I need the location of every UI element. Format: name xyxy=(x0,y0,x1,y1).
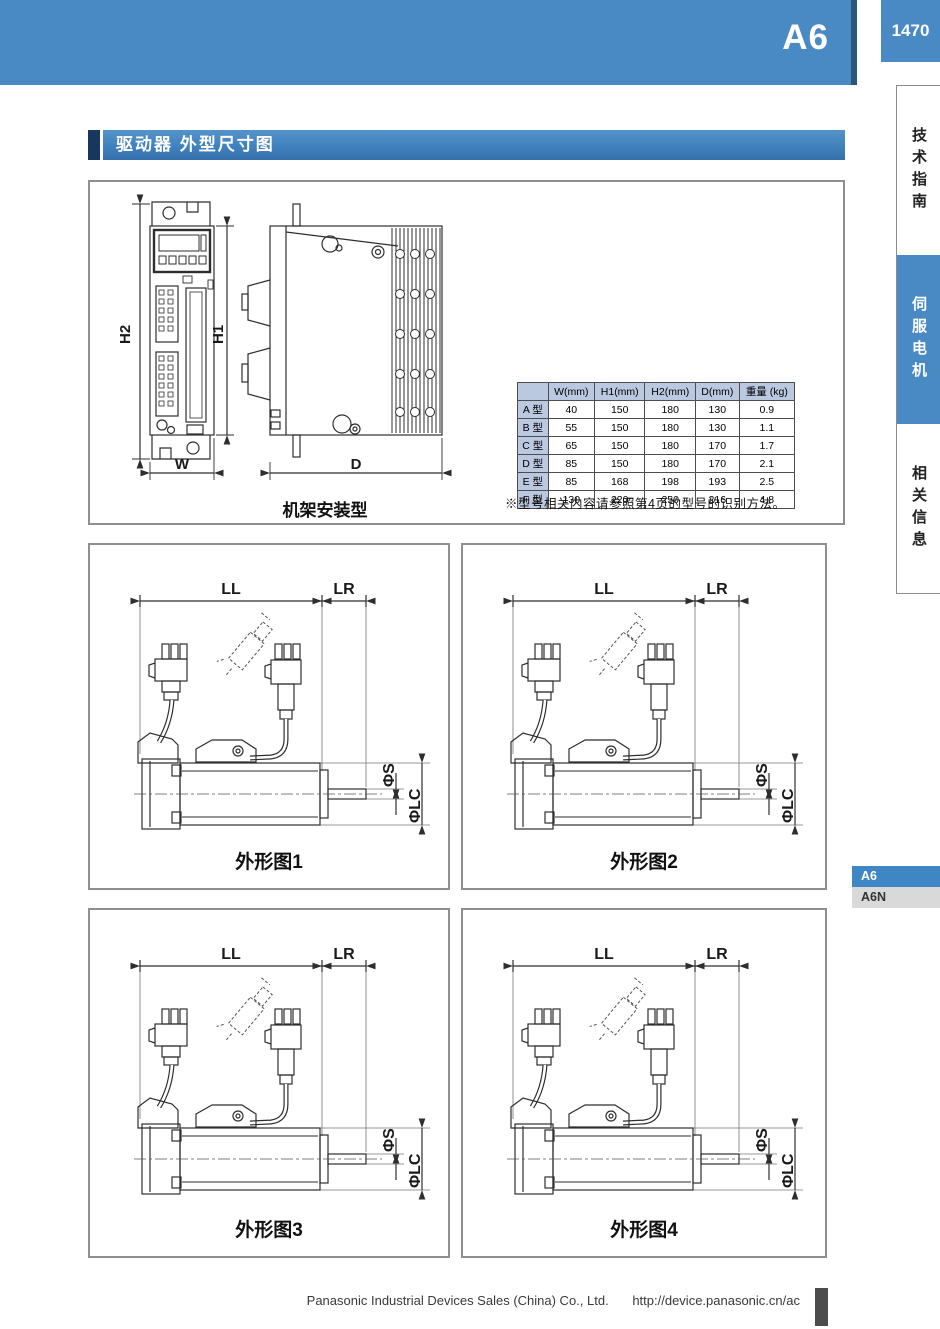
driver-side-view xyxy=(242,204,442,457)
col-header-type xyxy=(518,383,549,401)
col-header-h1: H1(mm) xyxy=(594,383,645,401)
col-header-w: W(mm) xyxy=(548,383,594,401)
cell-weight: 0.9 xyxy=(739,401,794,419)
sidebar-tab-tech-guide[interactable]: 技术指南 xyxy=(897,86,940,255)
cell-h1: 150 xyxy=(594,401,645,419)
top-header-bar: A6 xyxy=(0,0,851,85)
driver-front-view xyxy=(150,202,214,459)
page-number-badge: 1470 xyxy=(881,0,940,62)
cell-w: 40 xyxy=(548,401,594,419)
row-label: C 型 xyxy=(518,437,549,455)
table-header-row: W(mm) H1(mm) H2(mm) D(mm) 重量 (kg) xyxy=(518,383,795,401)
driver-spec-table: W(mm) H1(mm) H2(mm) D(mm) 重量 (kg) A 型 40… xyxy=(517,382,795,509)
table-row: D 型 85 150 180 170 2.1 xyxy=(518,455,795,473)
cell-weight: 1.1 xyxy=(739,419,794,437)
cell-h2: 180 xyxy=(645,437,696,455)
dim-label-d: D xyxy=(351,456,362,473)
col-header-h2: H2(mm) xyxy=(645,383,696,401)
cell-weight: 2.1 xyxy=(739,455,794,473)
series-code: A6 xyxy=(782,18,829,58)
cell-h1: 150 xyxy=(594,437,645,455)
footer: Panasonic Industrial Devices Sales (Chin… xyxy=(0,1293,800,1308)
driver-caption: 机架安装型 xyxy=(210,496,440,521)
table-row: E 型 85 168 198 193 2.5 xyxy=(518,473,795,491)
cell-d: 130 xyxy=(696,401,740,419)
figure-caption: 外形图2 xyxy=(463,847,825,874)
footer-url[interactable]: http://device.panasonic.cn/ac xyxy=(632,1293,800,1308)
figure-caption: 外形图4 xyxy=(463,1215,825,1242)
motor-outline-drawing xyxy=(92,914,446,1214)
outline-figure-panel-2: 外形图2 xyxy=(461,543,827,890)
cell-d: 170 xyxy=(696,455,740,473)
cell-h1: 168 xyxy=(594,473,645,491)
cell-h2: 180 xyxy=(645,401,696,419)
header-edge-strip xyxy=(851,0,857,85)
row-label: E 型 xyxy=(518,473,549,491)
cell-d: 170 xyxy=(696,437,740,455)
col-header-weight: 重量 (kg) xyxy=(739,383,794,401)
outline-figure-panel-1: 外形图1 xyxy=(88,543,450,890)
row-label: A 型 xyxy=(518,401,549,419)
series-tab-a6n[interactable]: A6N xyxy=(852,887,940,908)
cell-d: 130 xyxy=(696,419,740,437)
catalog-page: A6 1470 技术指南 伺服电机 相关信息 A6 A6N 驱动器 外型尺寸图 … xyxy=(0,0,940,1329)
outline-figure-panel-3: 外形图3 xyxy=(88,908,450,1258)
cell-h2: 198 xyxy=(645,473,696,491)
motor-outline-drawing xyxy=(465,549,819,849)
series-tab-group: A6 A6N xyxy=(852,866,940,908)
title-accent-square xyxy=(88,130,100,160)
table-row: C 型 65 150 180 170 1.7 xyxy=(518,437,795,455)
dim-label-w: W xyxy=(175,456,190,473)
cell-h2: 180 xyxy=(645,419,696,437)
side-tab-group: 技术指南 伺服电机 相关信息 xyxy=(896,85,940,594)
col-header-d: D(mm) xyxy=(696,383,740,401)
table-note: ※型号相关内容请参照第4页的型号的识别方法。 xyxy=(505,493,835,512)
cell-weight: 1.7 xyxy=(739,437,794,455)
cell-w: 85 xyxy=(548,473,594,491)
sidebar-tab-related-info[interactable]: 相关信息 xyxy=(897,424,940,593)
footer-company: Panasonic Industrial Devices Sales (Chin… xyxy=(307,1293,609,1308)
driver-dimension-panel: H2 xyxy=(88,180,845,525)
page-number: 1470 xyxy=(892,21,930,41)
series-tab-a6[interactable]: A6 xyxy=(852,866,940,887)
row-label: B 型 xyxy=(518,419,549,437)
table-row: A 型 40 150 180 130 0.9 xyxy=(518,401,795,419)
row-label: D 型 xyxy=(518,455,549,473)
sidebar-tab-servo-motor[interactable]: 伺服电机 xyxy=(897,255,940,424)
motor-outline-drawing xyxy=(465,914,819,1214)
driver-spec-table-wrap: W(mm) H1(mm) H2(mm) D(mm) 重量 (kg) A 型 40… xyxy=(517,382,795,509)
cell-w: 55 xyxy=(548,419,594,437)
cell-w: 85 xyxy=(548,455,594,473)
cell-h1: 150 xyxy=(594,419,645,437)
cell-w: 65 xyxy=(548,437,594,455)
dim-label-h2: H2 xyxy=(117,325,134,344)
figure-caption: 外形图3 xyxy=(90,1215,448,1242)
cell-weight: 2.5 xyxy=(739,473,794,491)
section-title-bar: 驱动器 外型尺寸图 xyxy=(88,130,845,160)
footer-edge-marker xyxy=(815,1288,828,1326)
cell-h2: 180 xyxy=(645,455,696,473)
section-title-text: 驱动器 外型尺寸图 xyxy=(103,130,845,160)
figure-caption: 外形图1 xyxy=(90,847,448,874)
cell-h1: 150 xyxy=(594,455,645,473)
table-row: B 型 55 150 180 130 1.1 xyxy=(518,419,795,437)
cell-d: 193 xyxy=(696,473,740,491)
outline-figure-panel-4: 外形图4 xyxy=(461,908,827,1258)
heatsink-fins xyxy=(392,228,440,433)
motor-outline-drawing xyxy=(92,549,446,849)
driver-outline-drawing: H2 xyxy=(90,182,560,492)
dim-label-h1: H1 xyxy=(210,325,227,344)
